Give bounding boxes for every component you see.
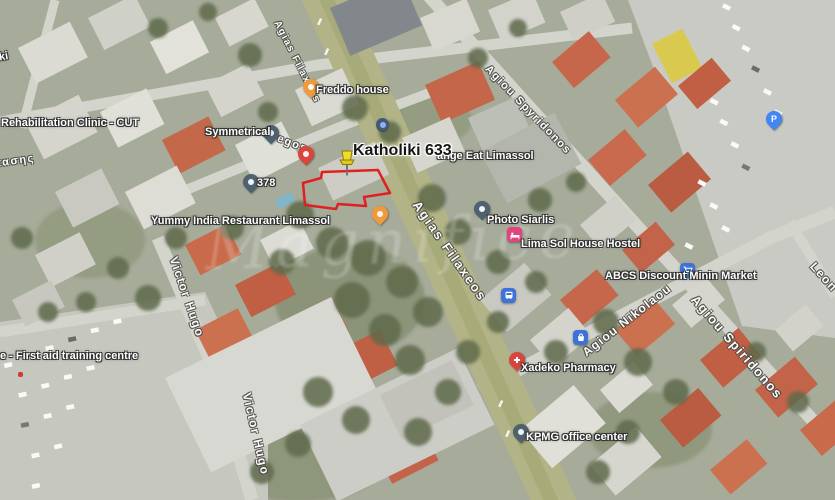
poi-label-yummy-india[interactable]: Yummy India Restaurant Limassol — [151, 215, 330, 227]
transit-dot-icon[interactable] — [376, 118, 389, 131]
poi-label-katholiki-633[interactable]: Katholiki 633 — [353, 142, 452, 160]
poi-label-photo-siarlis[interactable]: Photo Siarlis — [487, 214, 554, 226]
poi-label-kpmg[interactable]: KPMG office center — [526, 431, 627, 443]
poi-label-378[interactable]: 378 — [257, 177, 275, 189]
poi-label-freddo-house[interactable]: Freddo house — [316, 84, 389, 96]
pharmacy-cross-icon — [514, 357, 520, 363]
hostel-marker-icon[interactable] — [507, 227, 522, 242]
restaurant-pin-icon[interactable] — [298, 146, 314, 163]
poi-label-symmetrical[interactable]: Symmetrical — [205, 126, 270, 138]
poi-label-first-aid-centre[interactable]: e - First aid training centre — [0, 350, 138, 362]
search-result-pushpin-icon[interactable] — [337, 149, 357, 183]
restaurant-pin-icon-yummy[interactable] — [372, 206, 388, 223]
poi-label-rehabilitation-clinic[interactable]: Rehabilitation Clinic - CUT — [1, 117, 139, 129]
poi-label-abcs-market[interactable]: ABCS Discount Minin Market — [605, 270, 757, 282]
parking-pin-icon[interactable]: P — [766, 111, 782, 128]
bed-icon — [510, 230, 520, 240]
bus-stop-icon[interactable] — [501, 288, 516, 303]
poi-label-lima-sol-hostel[interactable]: Lima Sol House Hostel — [521, 238, 640, 250]
store-marker-icon[interactable] — [573, 330, 588, 345]
shopping-bag-icon — [576, 333, 586, 343]
mini-red-marker-icon — [18, 372, 23, 377]
bus-icon — [504, 291, 514, 301]
poi-label-xadeko-pharmacy[interactable]: Xadeko Pharmacy — [521, 362, 616, 374]
satellite-map-view: Magnifice Agias Filaxeos Agias Filaxeos … — [0, 0, 835, 500]
